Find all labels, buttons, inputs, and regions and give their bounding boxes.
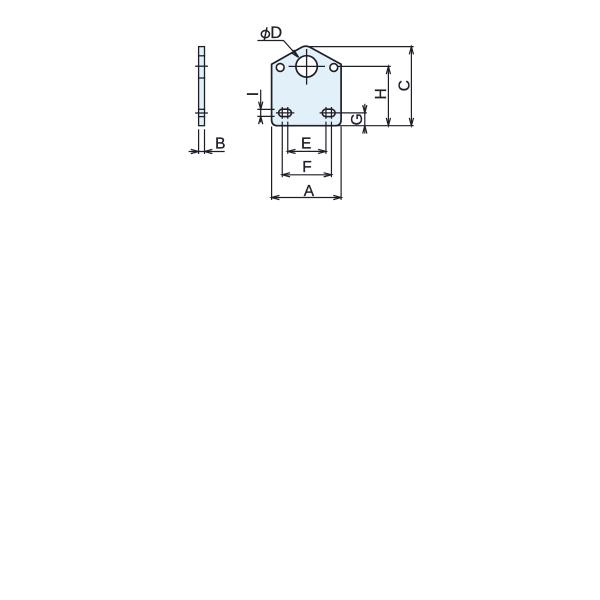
- svg-text:D: D: [270, 24, 282, 42]
- svg-text:A: A: [304, 183, 315, 200]
- svg-text:B: B: [215, 135, 225, 152]
- svg-text:F: F: [302, 159, 311, 176]
- svg-text:H: H: [373, 88, 390, 99]
- svg-text:E: E: [301, 136, 311, 153]
- svg-text:I: I: [245, 92, 262, 96]
- svg-text:C: C: [397, 80, 414, 91]
- svg-text:G: G: [349, 113, 366, 125]
